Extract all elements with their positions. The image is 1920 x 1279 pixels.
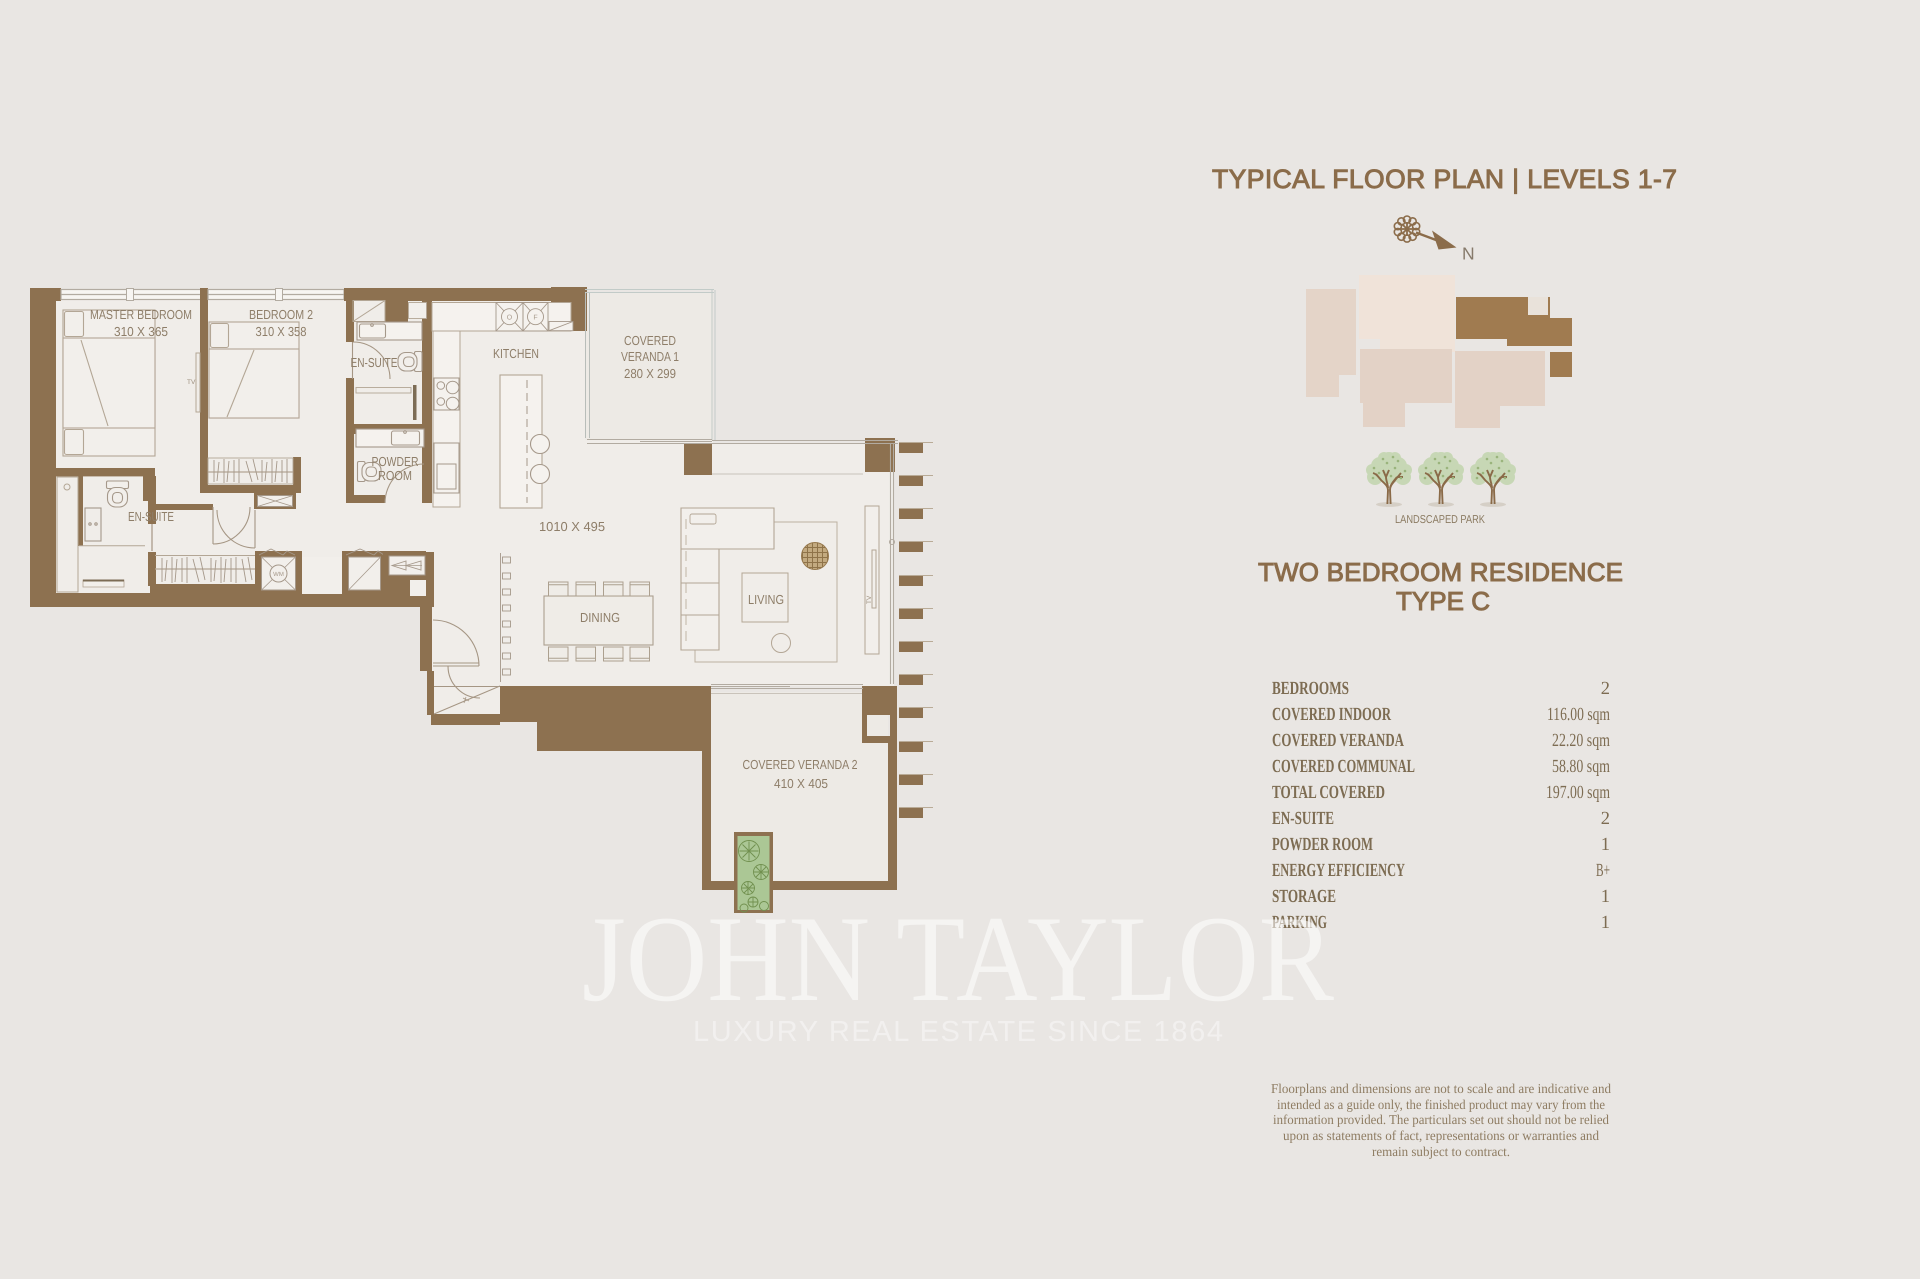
- svg-text:1: 1: [1601, 835, 1610, 855]
- svg-text:KITCHEN: KITCHEN: [493, 346, 539, 361]
- svg-text:COVERED COMMUNAL: COVERED COMMUNAL: [1272, 757, 1415, 777]
- svg-text:280 X 299: 280 X 299: [624, 366, 676, 381]
- svg-text:TWO BEDROOM RESIDENCE: TWO BEDROOM RESIDENCE: [1258, 557, 1623, 587]
- svg-text:BEDROOMS: BEDROOMS: [1272, 679, 1349, 699]
- svg-text:TYPICAL FLOOR PLAN | LEVELS 1-: TYPICAL FLOOR PLAN | LEVELS 1-7: [1212, 164, 1677, 194]
- svg-text:POWDER ROOM: POWDER ROOM: [1272, 835, 1373, 855]
- svg-text:TV: TV: [866, 595, 873, 604]
- svg-text:116.00 sqm: 116.00 sqm: [1547, 705, 1610, 725]
- svg-text:410 X 405: 410 X 405: [774, 776, 828, 791]
- svg-text:ENERGY EFFICIENCY: ENERGY EFFICIENCY: [1272, 861, 1405, 881]
- svg-text:B+: B+: [1596, 861, 1610, 881]
- svg-text:information provided. The part: information provided. The particulars se…: [1273, 1112, 1609, 1127]
- svg-text:upon as statements of fact, re: upon as statements of fact, representati…: [1283, 1128, 1599, 1143]
- svg-text:MASTER BEDROOM: MASTER BEDROOM: [90, 307, 192, 322]
- svg-text:EN-SUITE: EN-SUITE: [351, 355, 398, 370]
- svg-text:COVERED: COVERED: [624, 333, 676, 348]
- svg-text:COVERED INDOOR: COVERED INDOOR: [1272, 705, 1391, 725]
- svg-text:2: 2: [1601, 809, 1610, 829]
- svg-text:197.00 sqm: 197.00 sqm: [1546, 783, 1610, 803]
- svg-text:Floorplans and dimensions are: Floorplans and dimensions are not to sca…: [1271, 1081, 1611, 1096]
- svg-text:EN-SUITE: EN-SUITE: [128, 509, 174, 524]
- svg-text:TOTAL COVERED: TOTAL COVERED: [1272, 783, 1385, 803]
- svg-text:JOHN TAYLOR: JOHN TAYLOR: [582, 890, 1334, 1027]
- svg-text:BEDROOM 2: BEDROOM 2: [249, 307, 313, 322]
- svg-text:2: 2: [1601, 679, 1610, 699]
- svg-text:F: F: [533, 315, 537, 322]
- svg-text:COVERED VERANDA 2: COVERED VERANDA 2: [743, 757, 858, 772]
- svg-text:VERANDA 1: VERANDA 1: [621, 349, 679, 364]
- svg-text:1: 1: [1601, 913, 1610, 933]
- svg-text:1: 1: [1601, 887, 1610, 907]
- svg-text:WM: WM: [273, 571, 284, 578]
- svg-text:COVERED VERANDA: COVERED VERANDA: [1272, 731, 1404, 751]
- svg-text:EN-SUITE: EN-SUITE: [1272, 809, 1334, 829]
- svg-text:ROOM: ROOM: [378, 468, 412, 483]
- svg-text:22.20 sqm: 22.20 sqm: [1552, 731, 1610, 751]
- svg-text:intended as a guide only, the: intended as a guide only, the finished p…: [1277, 1097, 1605, 1112]
- svg-text:O: O: [507, 315, 513, 322]
- svg-text:LUXURY REAL ESTATE SINCE 1864: LUXURY REAL ESTATE SINCE 1864: [693, 1016, 1223, 1048]
- svg-text:310 X 358: 310 X 358: [256, 324, 307, 339]
- svg-text:310 X 365: 310 X 365: [114, 324, 168, 339]
- svg-text:N: N: [1462, 244, 1475, 264]
- svg-text:1010 X 495: 1010 X 495: [539, 519, 605, 534]
- svg-text:POWDER: POWDER: [372, 454, 419, 469]
- svg-text:TV: TV: [187, 379, 196, 386]
- svg-text:DINING: DINING: [580, 610, 620, 625]
- svg-text:remain subject to contract.: remain subject to contract.: [1372, 1144, 1510, 1159]
- svg-text:TYPE C: TYPE C: [1396, 586, 1490, 616]
- svg-text:LANDSCAPED PARK: LANDSCAPED PARK: [1395, 514, 1485, 526]
- svg-text:LIVING: LIVING: [748, 592, 784, 607]
- svg-text:58.80 sqm: 58.80 sqm: [1552, 757, 1610, 777]
